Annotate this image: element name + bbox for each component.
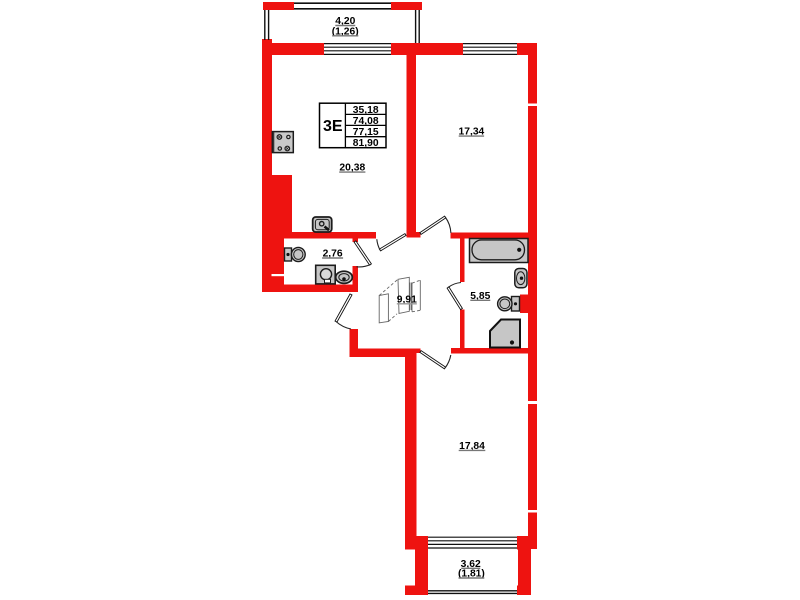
- svg-text:77,15: 77,15: [353, 127, 379, 138]
- svg-text:81,90: 81,90: [353, 138, 379, 149]
- svg-text:35,18: 35,18: [353, 105, 379, 116]
- svg-text:74,08: 74,08: [353, 116, 379, 127]
- svg-text:3E: 3E: [323, 118, 343, 135]
